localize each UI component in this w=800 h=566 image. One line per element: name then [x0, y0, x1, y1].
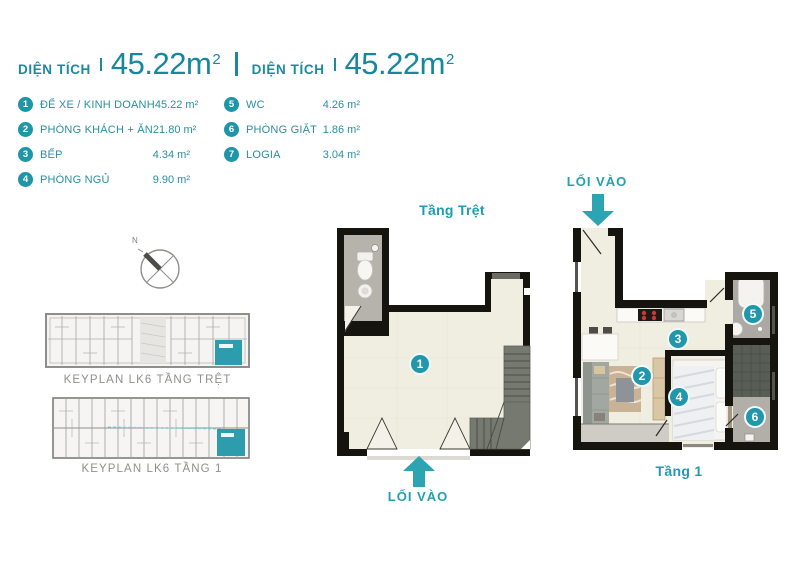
legend-item-area: 4.26 m² [323, 99, 360, 111]
legend-item-number-badge: 5 [224, 97, 239, 112]
sink-icon [372, 245, 379, 252]
legend-column-1: 1 ĐỂ XE / KINH DOANH 45.22 m² 2 PHÒNG KH… [18, 92, 190, 192]
legend-item-number-badge: 3 [18, 147, 33, 162]
legend-item: 3 BẾP 4.34 m² [18, 142, 190, 167]
room-marker-2: 2 [631, 365, 653, 387]
room-marker-4: 4 [668, 386, 690, 408]
floorplan-page: DIỆN TÍCH 45.22m 2 DIỆN TÍCH 45.22m 2 1 … [0, 0, 800, 566]
legend-item: 4 PHÒNG NGỦ 9.90 m² [18, 167, 190, 192]
keyplan-tang-1-thumbnail [52, 397, 250, 461]
toilet-icon [358, 260, 373, 280]
room-marker-6: 6 [744, 406, 766, 428]
legend-item: 7 LOGIA 3.04 m² [224, 142, 360, 167]
legend-item-area: 3.04 m² [323, 149, 360, 161]
ground-floor-title: Tầng Trệt [352, 202, 552, 218]
legend-item-label: PHÒNG NGỦ [40, 174, 153, 186]
balcony [581, 424, 669, 442]
ground-floor-plan: 1 [337, 228, 537, 463]
legend-item-number-badge: 2 [18, 122, 33, 137]
area-value: 45.22m [111, 46, 211, 82]
kitchen-counter [617, 308, 705, 322]
keyplan-tang-tret-thumbnail [45, 313, 250, 371]
stove-icon [638, 309, 662, 321]
sofa [583, 362, 609, 424]
area-value: 45.22m [345, 46, 445, 82]
legend-item: 1 ĐỂ XE / KINH DOANH 45.22 m² [18, 92, 190, 117]
legend-item-label: WC [246, 99, 323, 111]
area-value-sup: 2 [212, 51, 220, 68]
legend-item-area: 45.22 m² [155, 99, 198, 111]
wc-room [337, 228, 389, 336]
entrance-arrow-up-icon [403, 456, 435, 487]
legend-item: 5 WC 4.26 m² [224, 92, 360, 117]
logia-tiles [733, 345, 770, 397]
legend-item-number-badge: 4 [18, 172, 33, 187]
area-block-first: DIỆN TÍCH 45.22m 2 [252, 46, 455, 82]
area-label: DIỆN TÍCH [18, 62, 91, 77]
entrance-label: LỐI VÀO [547, 174, 647, 189]
separator [100, 58, 102, 71]
area-header: DIỆN TÍCH 45.22m 2 DIỆN TÍCH 45.22m 2 [18, 46, 454, 82]
area-value-sup: 2 [446, 51, 454, 68]
entrance-label: LỐI VÀO [368, 489, 468, 504]
legend-column-2: 5 WC 4.26 m² 6 PHÒNG GIẶT 1.86 m² 7 LOGI… [224, 92, 360, 167]
wardrobe [653, 358, 665, 420]
keyplan-highlight-unit [215, 340, 242, 365]
first-floor-plan: 2 3 4 5 6 [570, 228, 778, 456]
room-marker-3: 3 [667, 328, 689, 350]
legend-item-label: PHÒNG KHÁCH + ĂN [40, 124, 153, 136]
legend-item: 6 PHÒNG GIẶT 1.86 m² [224, 117, 360, 142]
area-block-ground: DIỆN TÍCH 45.22m 2 [18, 46, 221, 82]
legend-item-area: 1.86 m² [323, 124, 360, 136]
legend-item-label: ĐỂ XE / KINH DOANH [40, 99, 155, 111]
legend-item-number-badge: 7 [224, 147, 239, 162]
legend-item-area: 4.34 m² [153, 149, 190, 161]
legend-item-number-badge: 6 [224, 122, 239, 137]
legend-item-number-badge: 1 [18, 97, 33, 112]
keyplan-tang-1-caption: KEYPLAN LK6 TẦNG 1 [42, 463, 262, 475]
first-floor-title: Tầng 1 [629, 463, 729, 479]
legend-item-label: BẾP [40, 149, 153, 161]
legend-item-area: 21.80 m² [153, 124, 196, 136]
compass-north-label: N [132, 236, 138, 245]
legend-item-label: PHÒNG GIẶT [246, 124, 323, 136]
entrance-arrow-down-icon [582, 194, 614, 226]
separator [334, 58, 336, 71]
legend-item-area: 9.90 m² [153, 174, 190, 186]
legend-item: 2 PHÒNG KHÁCH + ĂN 21.80 m² [18, 117, 190, 142]
legend-item-label: LOGIA [246, 149, 323, 161]
room-marker-1: 1 [409, 353, 431, 375]
area-label: DIỆN TÍCH [252, 62, 325, 77]
window-lintel [492, 273, 520, 279]
keyplan-tang-tret-caption: KEYPLAN LK6 TẦNG TRỆT [35, 374, 260, 386]
compass-icon: N [126, 236, 190, 300]
room-marker-5: 5 [742, 303, 764, 325]
divider [235, 52, 238, 76]
